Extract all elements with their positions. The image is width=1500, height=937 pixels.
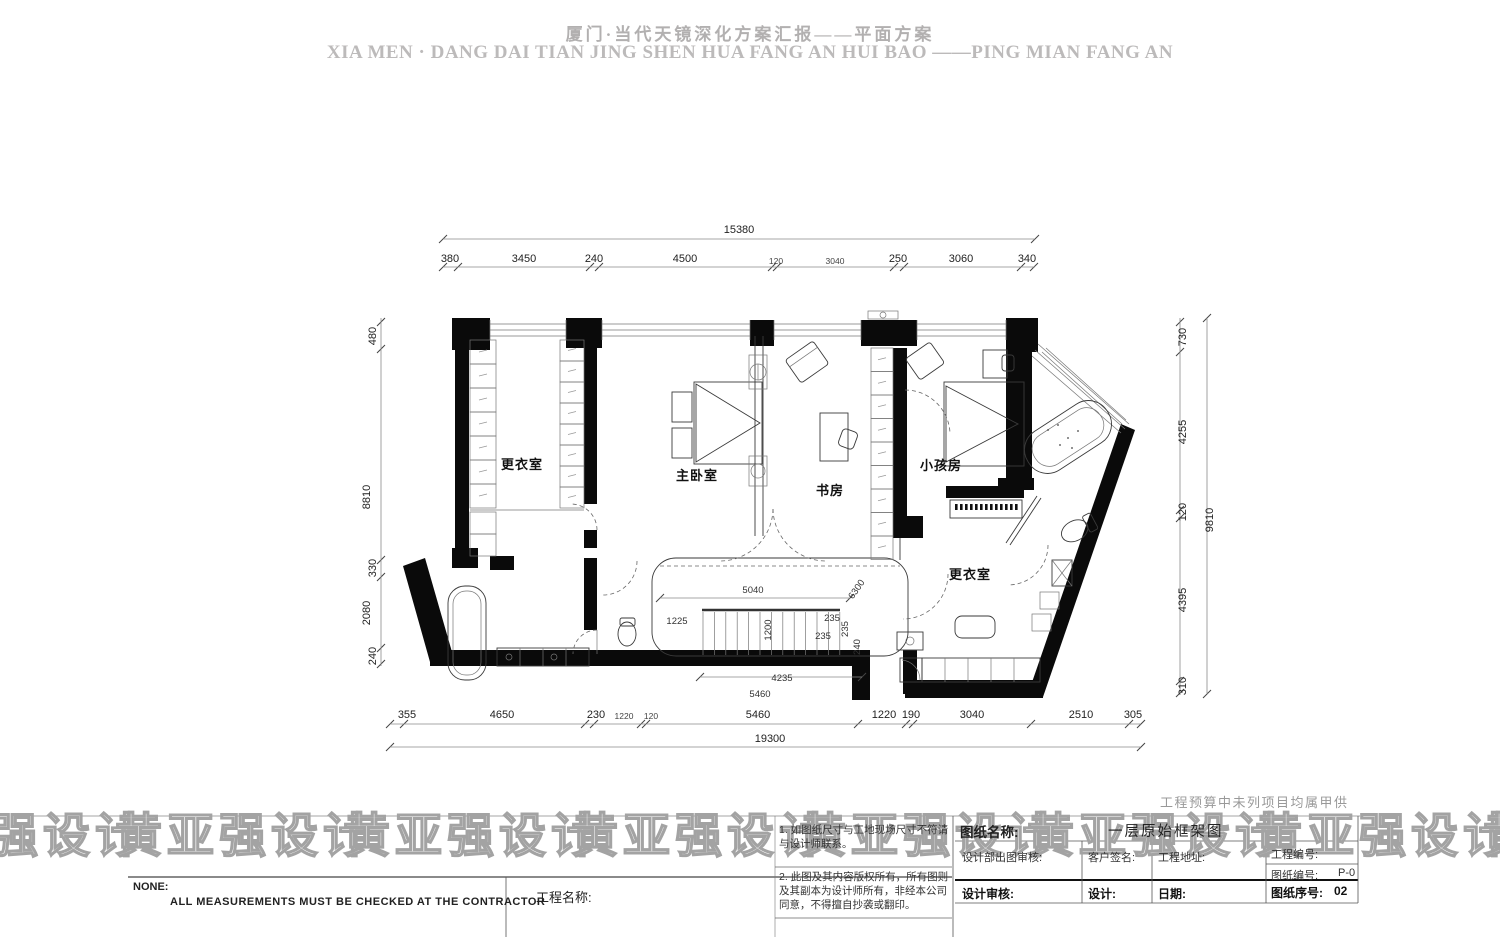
dim-left-4: 240 — [367, 647, 379, 665]
client-sign-label: 客户签名: — [1088, 849, 1135, 865]
serial-label: 图纸序号: — [1271, 884, 1323, 901]
decorations — [377, 235, 1211, 751]
room-label-kids: 小孩房 — [920, 458, 962, 473]
project-name-label: 工程名称: — [536, 887, 592, 906]
dim-right-2: 120 — [1177, 503, 1189, 521]
dim-top-7: 3060 — [949, 253, 973, 265]
note-2: 2. 此图及其内容版权所有，所有图则及其副本为设计师所有，非经本公司同意，不得擅… — [779, 871, 949, 913]
dim-inner-depth: 1200 — [763, 619, 774, 640]
master-bedroom-furniture — [672, 355, 767, 486]
dim-bottom-5: 5460 — [746, 709, 770, 721]
dept-review-label: 设计部出图审核: — [962, 849, 1042, 865]
dim-right-1: 4255 — [1177, 420, 1189, 444]
dimension-lines — [381, 239, 1207, 747]
corridor-stairs — [652, 558, 908, 656]
drawing-no-value: P-0 — [1338, 867, 1355, 879]
dim-inner-t1: 235 — [824, 613, 840, 624]
dim-inner-total: 5460 — [749, 689, 770, 700]
scale-label: NONE: — [133, 881, 168, 893]
sheet: 厦门·当代天镜深化方案汇报——平面方案 XIA MEN · DANG DAI T… — [0, 0, 1500, 937]
dim-inner-t4: 240 — [852, 639, 863, 655]
project-no-label: 工程编号: — [1271, 846, 1318, 862]
dim-top-0: 380 — [441, 253, 459, 265]
dim-inner-run: 4235 — [771, 673, 792, 684]
dim-top-8: 340 — [1018, 253, 1036, 265]
room-label-study: 书房 — [816, 483, 844, 498]
dim-bottom-4: 120 — [644, 711, 658, 721]
design-review-label: 设计审核: — [962, 885, 1014, 902]
watermark-text: 黄亚强设计 — [115, 809, 375, 862]
dim-bottom-6: 1220 — [872, 709, 896, 721]
watermark-text: 黄亚强设计 — [1483, 809, 1500, 862]
dim-left-3: 2080 — [361, 601, 373, 625]
dim-inner-t2: 235 — [815, 631, 831, 642]
dressing2-furniture — [897, 616, 1040, 682]
dim-bottom-3: 1220 — [615, 711, 634, 721]
dim-top-4: 120 — [769, 256, 783, 266]
dim-bottom-9: 2510 — [1069, 709, 1093, 721]
note-1: 1. 如图纸尺寸与工地现场尺寸不符请与设计师联系。 — [779, 824, 949, 852]
dim-inner-width: 5040 — [742, 585, 763, 596]
dim-top-1: 3450 — [512, 253, 536, 265]
date-label: 日期: — [1158, 885, 1186, 902]
contractor-note: ALL MEASUREMENTS MUST BE CHECKED AT THE … — [170, 896, 545, 908]
dim-right-0: 730 — [1177, 328, 1189, 346]
room-label-dressing1: 更衣室 — [501, 457, 543, 472]
dim-left-2: 330 — [367, 559, 379, 577]
watermark-text: 黄亚强设计 — [343, 809, 603, 862]
study-furniture — [785, 341, 859, 461]
dim-right-3: 4395 — [1177, 588, 1189, 612]
dim-right-4: 310 — [1177, 677, 1189, 695]
door-arcs — [571, 390, 1048, 654]
room-label-dressing2: 更衣室 — [949, 567, 991, 582]
dim-inner-t3: 235 — [840, 621, 851, 637]
dim-bottom-2: 230 — [587, 709, 605, 721]
dim-top-6: 250 — [889, 253, 907, 265]
dim-inner-left: 1225 — [666, 616, 687, 627]
dim-bottom-10: 305 — [1124, 709, 1142, 721]
dim-left-0: 480 — [367, 327, 379, 345]
dim-bottom-7: 190 — [902, 709, 920, 721]
dim-bottom-1: 4650 — [490, 709, 514, 721]
drawing-no-label: 图纸编号: — [1271, 867, 1318, 883]
dim-bottom-overall: 19300 — [755, 733, 786, 745]
designer-label: 设计: — [1088, 885, 1116, 902]
room-label-master: 主卧室 — [676, 468, 718, 483]
address-label: 工程地址: — [1158, 849, 1205, 865]
procurement-note: 工程预算中未列项目均属甲供 — [1160, 792, 1349, 811]
drawing-name-label: 图纸名称: — [960, 821, 1019, 841]
dim-top-5: 3040 — [826, 256, 845, 266]
dim-bottom-8: 3040 — [960, 709, 984, 721]
dim-inner-diag: 6300 — [846, 578, 867, 602]
dim-bottom-0: 355 — [398, 709, 416, 721]
dimension-texts: 15380 380 3450 240 4500 120 3040 250 306… — [361, 224, 1216, 745]
dim-right-overall: 9810 — [1204, 508, 1216, 532]
serial-value: 02 — [1334, 884, 1347, 898]
dim-top-3: 4500 — [673, 253, 697, 265]
dim-left-1: 8810 — [361, 485, 373, 509]
dim-top-2: 240 — [585, 253, 603, 265]
dim-top-overall: 15380 — [724, 224, 755, 236]
drawing-name-value: 一层原始框架图 — [1108, 820, 1224, 841]
